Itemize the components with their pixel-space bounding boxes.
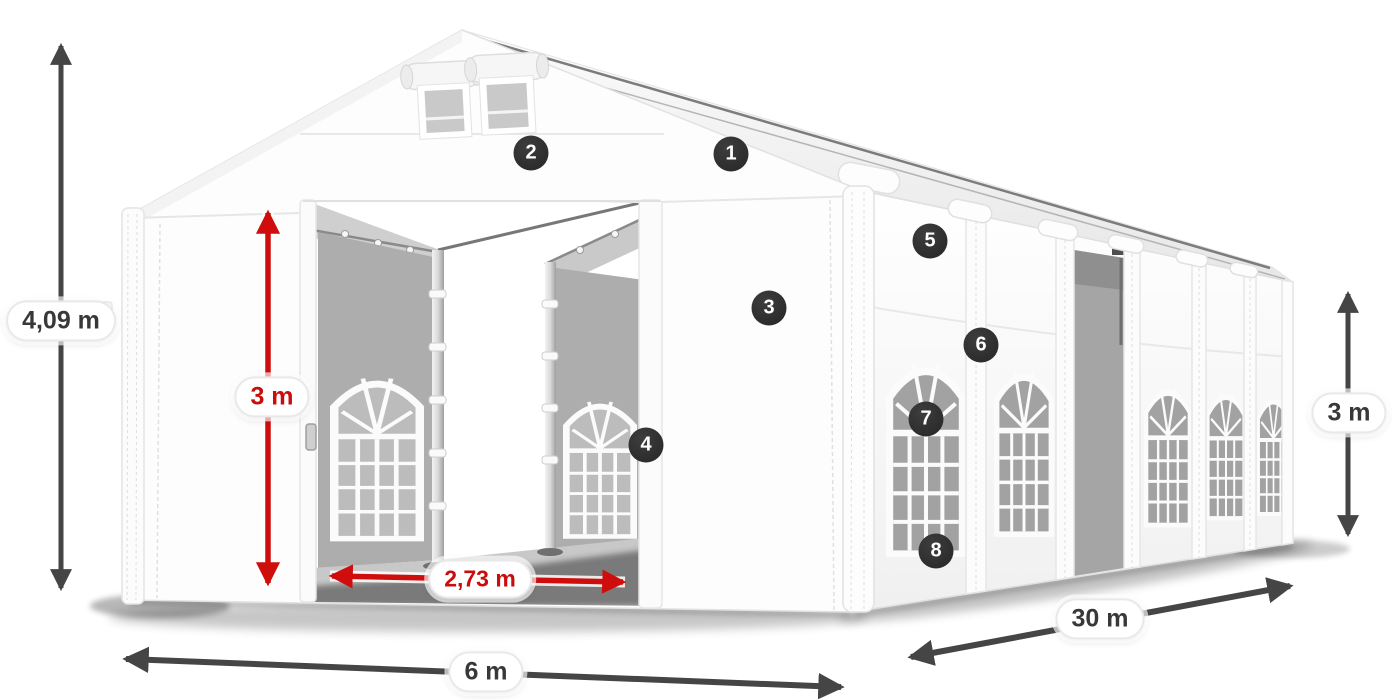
door-width-label: 2,73 m	[428, 560, 532, 599]
hotspot-2[interactable]: 2	[514, 136, 549, 171]
hotspot-5[interactable]: 5	[913, 224, 948, 259]
door-handle	[306, 424, 316, 450]
interior-right-door-panel	[556, 268, 644, 554]
side-entrance-opening	[1074, 246, 1124, 576]
hotspot-8[interactable]: 8	[919, 534, 954, 569]
hotspot-4[interactable]: 4	[629, 428, 664, 463]
hotspot-7[interactable]: 7	[909, 402, 944, 437]
length-label: 30 m	[1056, 598, 1145, 639]
hotspot-3[interactable]: 3	[752, 291, 787, 326]
side-wall	[836, 160, 1293, 612]
front-entrance	[300, 198, 662, 608]
total-height-label: 4,09 m	[6, 300, 116, 341]
hotspot-1[interactable]: 1	[714, 137, 749, 172]
interior-left-door-panel	[318, 232, 438, 568]
tent-dimension-diagram: 4,09 m 3 m 2,73 m 6 m 30 m 3 m 1 2 3 4 5…	[0, 0, 1400, 700]
side-height-label: 3 m	[1311, 392, 1386, 433]
tent-illustration	[0, 0, 1400, 700]
front-left-corner-post	[98, 208, 144, 604]
front-right-corner-post	[843, 186, 874, 612]
door-height-label: 3 m	[234, 376, 309, 417]
door-right-jamb	[639, 200, 662, 608]
front-width-label: 6 m	[448, 651, 523, 692]
hotspot-6[interactable]: 6	[964, 328, 999, 363]
